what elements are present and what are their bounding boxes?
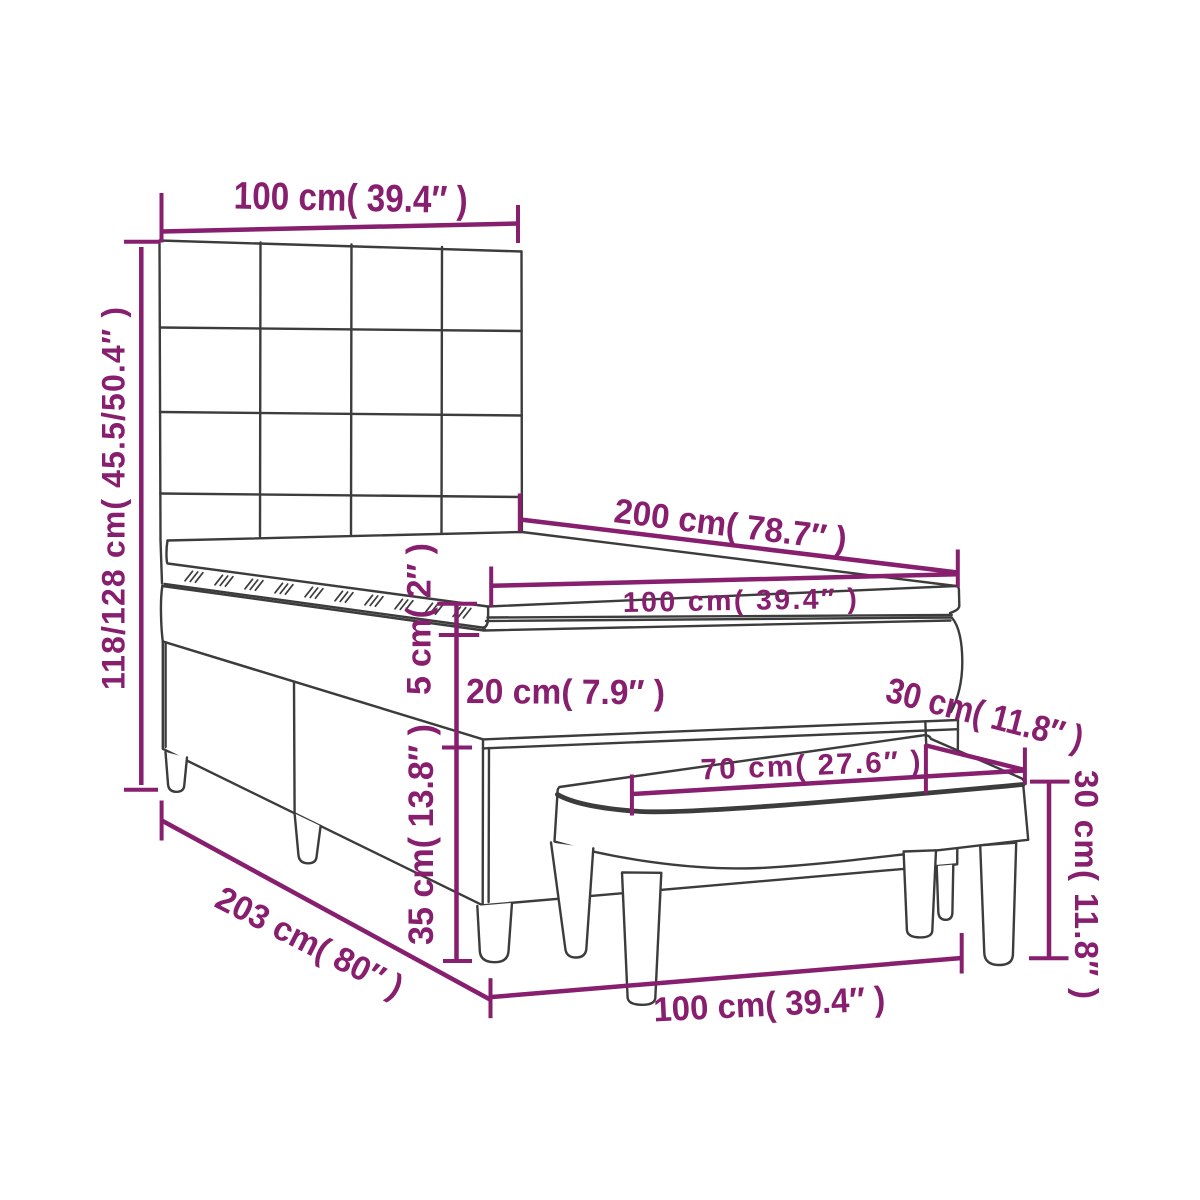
svg-text:118/128 cm( 45.5/50.4″ ): 118/128 cm( 45.5/50.4″ )	[96, 307, 132, 690]
svg-text:100 cm( 39.4″ ): 100 cm( 39.4″ )	[233, 175, 468, 222]
svg-text:20 cm( 7.9″ ): 20 cm( 7.9″ )	[466, 672, 665, 712]
svg-text:5 cm( 2″ ): 5 cm( 2″ )	[401, 543, 439, 695]
svg-text:35 cm( 13.8″ ): 35 cm( 13.8″ )	[402, 724, 441, 945]
svg-text:30 cm( 11.8″ ): 30 cm( 11.8″ )	[1068, 770, 1105, 999]
